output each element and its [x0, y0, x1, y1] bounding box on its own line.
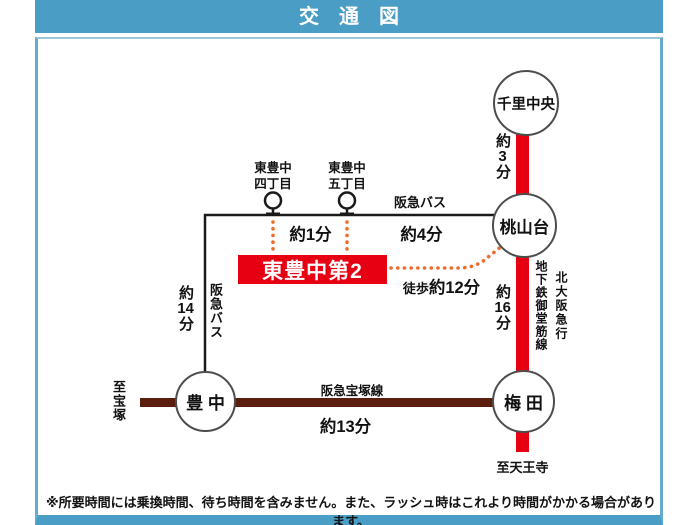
bus-stop-yonchome-line2: 四丁目: [233, 176, 313, 192]
station-momoyamadai-label: 桃山台: [500, 214, 550, 238]
station-toyonaka-label: 豊 中: [186, 389, 225, 414]
time-momo-pre: 約: [494, 284, 511, 300]
midosuji-line-label: 地下鉄御堂筋線: [535, 260, 547, 351]
walk-time-value: 約12分: [429, 279, 480, 297]
time-bus-num: 14: [177, 301, 194, 316]
time-stop-to-momoyamadai: 約4分: [384, 221, 459, 245]
bus-stop-label-yonchome: 東豊中 四丁目: [233, 160, 313, 192]
station-umeda: 梅 田: [492, 370, 555, 433]
walk-time-prefix: 徒歩: [403, 281, 429, 296]
footnote: ※所要時間には乗換時間、待ち時間を含みません。また、ラッシュ時はこれより時間がか…: [41, 492, 661, 525]
time-senri-momoyamadai: 約3分: [495, 133, 510, 180]
time-momo-suf: 分: [494, 315, 511, 331]
time-stop-to-stop: 約1分: [273, 221, 348, 245]
time-toyonaka-umeda: 約13分: [303, 413, 388, 437]
station-senri-chuo: 千里中央: [493, 70, 559, 136]
access-map-page: 交 通 図 千里中央 桃山台: [0, 0, 700, 525]
station-senri-chuo-label: 千里中央: [497, 93, 555, 114]
time-bus-toyonaka: 約14分: [178, 285, 193, 332]
station-umeda-label: 梅 田: [504, 389, 543, 414]
bus-stop-icon-yonchome: [265, 193, 281, 217]
bus-stop-yonchome-line1: 東豊中: [233, 160, 313, 176]
property-name: 東豊中第2: [262, 255, 363, 285]
rail-segment-momoyamadai-umeda: [516, 250, 529, 380]
direction-to-takarazuka: 至宝塚: [112, 380, 125, 422]
dotted-path-property-momoyamadai: [391, 245, 503, 268]
hankyu-takarazuka-line-label: 阪急宝塚線: [292, 380, 412, 399]
property-name-box: 東豊中第2: [238, 255, 387, 284]
bus-stop-icon-gochome: [339, 193, 355, 217]
bus-stop-label-gochome: 東豊中 五丁目: [307, 160, 387, 192]
bus-stop-gochome-line1: 東豊中: [307, 160, 387, 176]
hankyu-bus-left-label: 阪急バス: [209, 283, 222, 339]
time-bus-suf: 分: [177, 316, 194, 332]
bus-stop-gochome-line2: 五丁目: [307, 176, 387, 192]
time-senri-num: 3: [494, 149, 511, 164]
time-momo-num: 16: [494, 300, 511, 315]
hankyu-bus-top-label: 阪急バス: [370, 192, 470, 211]
time-senri-pre: 約: [494, 133, 511, 149]
kita-osaka-kyuko-label: 北大阪急行: [555, 271, 567, 341]
time-senri-suf: 分: [494, 164, 511, 180]
time-bus-pre: 約: [177, 285, 194, 301]
station-momoyamadai: 桃山台: [492, 193, 557, 258]
station-toyonaka: 豊 中: [175, 371, 236, 432]
direction-to-tennoji: 至天王寺: [480, 457, 565, 476]
time-momoyamadai-umeda: 約16分: [495, 284, 510, 331]
walk-time-label: 徒歩約12分: [379, 274, 504, 298]
